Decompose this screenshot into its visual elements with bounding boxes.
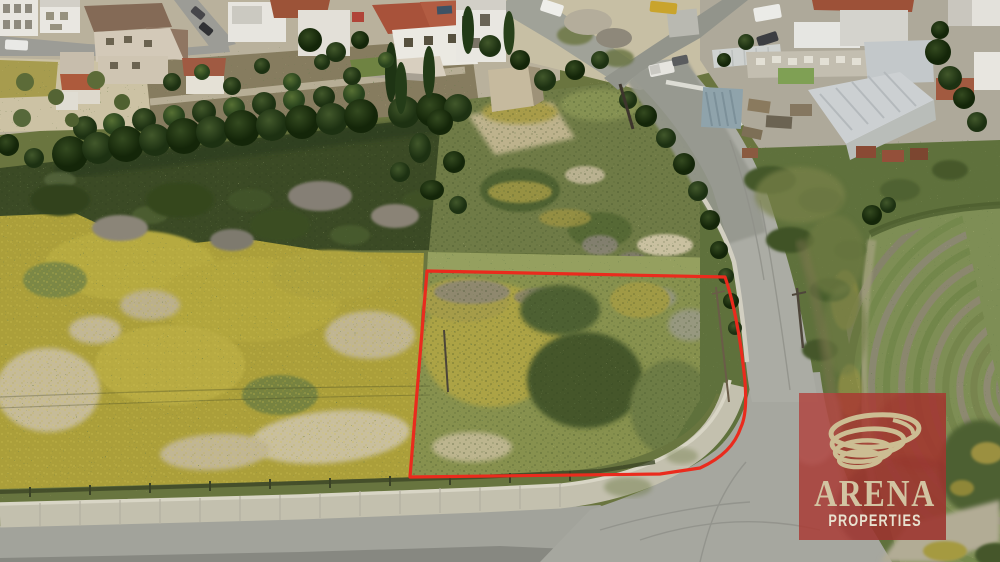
svg-text:PROPERTIES: PROPERTIES xyxy=(828,511,921,530)
svg-text:ARENA: ARENA xyxy=(814,472,936,514)
